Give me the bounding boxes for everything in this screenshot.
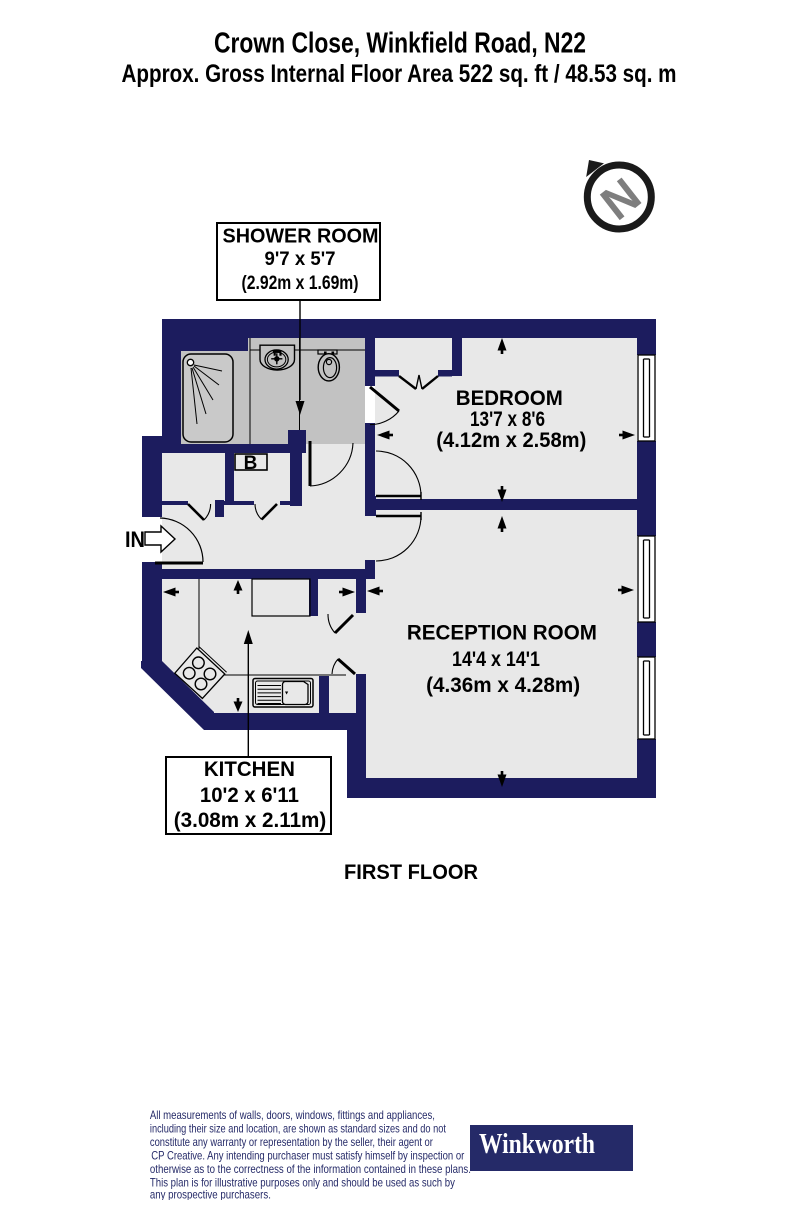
svg-text:Approx. Gross Internal Floor A: Approx. Gross Internal Floor Area 522 sq…	[122, 60, 677, 88]
svg-text:Crown Close, Winkfield Road, N: Crown Close, Winkfield Road, N22	[214, 28, 586, 60]
svg-text:SHOWER ROOM: SHOWER ROOM	[223, 225, 379, 248]
svg-text:CP Creative. Any intending pur: CP Creative. Any intending purchaser mus…	[151, 1149, 464, 1163]
svg-text:IN: IN	[125, 527, 145, 552]
svg-text:All measurements of walls, doo: All measurements of walls, doors, window…	[150, 1108, 435, 1122]
svg-text:(2.92m x 1.69m): (2.92m x 1.69m)	[242, 273, 359, 294]
svg-text:(3.08m x 2.11m): (3.08m x 2.11m)	[174, 809, 327, 832]
svg-text:otherwise as to the correctnes: otherwise as to the correctness of the i…	[150, 1162, 471, 1176]
svg-text:RECEPTION ROOM: RECEPTION ROOM	[407, 622, 597, 645]
svg-text:13'7 x 8'6: 13'7 x 8'6	[470, 408, 545, 431]
svg-text:B: B	[244, 453, 258, 474]
svg-text:including their size and locat: including their size and location, are s…	[150, 1122, 447, 1136]
svg-text:9'7 x 5'7: 9'7 x 5'7	[265, 249, 336, 270]
svg-text:BEDROOM: BEDROOM	[456, 387, 563, 410]
svg-text:(4.36m x 4.28m): (4.36m x 4.28m)	[426, 674, 580, 697]
svg-text:Winkworth: Winkworth	[479, 1129, 595, 1160]
svg-text:10'2 x 6'11: 10'2 x 6'11	[200, 784, 299, 807]
svg-text:KITCHEN: KITCHEN	[204, 758, 295, 781]
svg-text:constitute any warranty or rep: constitute any warranty or representatio…	[150, 1135, 433, 1149]
svg-text:14'4 x 14'1: 14'4 x 14'1	[452, 648, 540, 671]
svg-text:any prospective purchasers.: any prospective purchasers.	[150, 1188, 271, 1201]
svg-text:(4.12m x 2.58m): (4.12m x 2.58m)	[436, 429, 586, 452]
svg-text:FIRST FLOOR: FIRST FLOOR	[344, 860, 478, 884]
